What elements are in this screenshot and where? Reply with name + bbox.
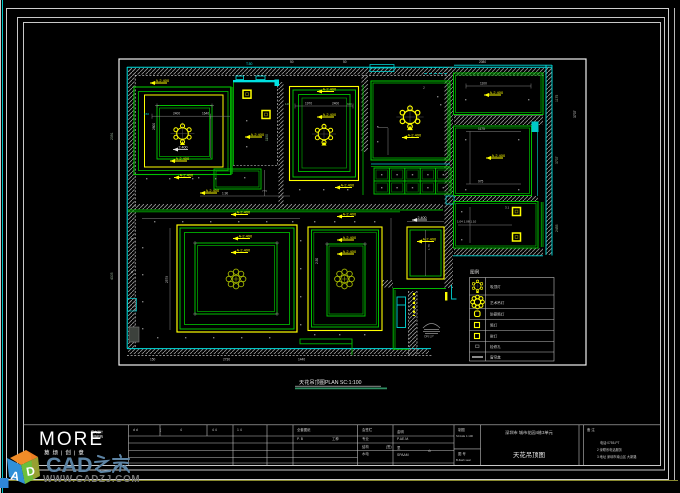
svg-text:图 号: 图 号	[458, 451, 466, 456]
svg-text:1 4: 1 4	[237, 428, 242, 432]
svg-text:2400: 2400	[332, 102, 339, 106]
svg-text:2455: 2455	[555, 224, 559, 232]
svg-text:P.AE.M.: P.AE.M.	[397, 437, 409, 441]
svg-text:1.78: 1.78	[427, 244, 431, 250]
svg-text:天花吊顶图: 天花吊顶图	[513, 450, 545, 459]
svg-text:结构: 结构	[362, 444, 369, 449]
svg-text:ON LP: ON LP	[424, 335, 434, 339]
svg-text:140: 140	[285, 102, 290, 106]
svg-text:2400: 2400	[173, 112, 180, 116]
svg-text:艺术吊灯: 艺术吊灯	[490, 300, 505, 305]
svg-text:2579: 2579	[165, 276, 169, 283]
svg-text:1150: 1150	[265, 134, 269, 141]
svg-text:2080: 2080	[479, 60, 486, 64]
svg-text:2730: 2730	[223, 358, 230, 362]
svg-text:窗帘盒: 窗帘盒	[490, 355, 501, 360]
svg-text:1175: 1175	[478, 127, 485, 131]
svg-text:1440: 1440	[298, 358, 305, 362]
svg-text:975: 975	[478, 180, 484, 184]
svg-text:水电: 水电	[362, 451, 369, 456]
svg-text:4305: 4305	[110, 272, 114, 280]
svg-text:电话:0755-PT: 电话:0755-PT	[600, 440, 620, 445]
svg-text:1175: 1175	[555, 95, 559, 102]
svg-text:(签): (签)	[386, 444, 392, 449]
svg-text:d d: d d	[133, 428, 138, 432]
svg-text:50: 50	[343, 60, 347, 64]
svg-text:2800: 2800	[152, 123, 156, 130]
svg-text:检修孔: 检修孔	[490, 344, 501, 349]
svg-text:3.1: 3.1	[505, 206, 510, 210]
svg-text:1.04 1.08 1.10: 1.04 1.08 1.10	[457, 220, 477, 224]
svg-text:940: 940	[347, 102, 352, 106]
svg-text:2 深联系电话服务: 2 深联系电话服务	[597, 447, 623, 452]
svg-text:1970: 1970	[305, 102, 312, 106]
svg-text:天花吊顶图PLAN SC:1:100: 天花吊顶图PLAN SC:1:100	[299, 378, 362, 386]
svg-text:SPAAM: SPAAM	[397, 453, 409, 457]
svg-text:金明: 金明	[397, 429, 404, 434]
svg-text:1100: 1100	[480, 82, 487, 86]
svg-text:防雾筒灯: 防雾筒灯	[490, 312, 505, 317]
svg-text:150: 150	[144, 112, 149, 116]
svg-text:775: 775	[262, 189, 267, 193]
svg-text:装饰机构: 装饰机构	[91, 434, 103, 439]
svg-text:1640: 1640	[202, 112, 209, 116]
svg-text:2.50: 2.50	[315, 258, 319, 264]
svg-text:WWW.CADZJ.COM: WWW.CADZJ.COM	[43, 474, 140, 485]
svg-text:吸顶灯: 吸顶灯	[490, 284, 501, 289]
svg-text:3 地址 深圳市南山区 大新路: 3 地址 深圳市南山区 大新路	[597, 454, 637, 459]
svg-text:深圳市 城市花园4栋3单元: 深圳市 城市花园4栋3单元	[505, 429, 553, 436]
svg-text:图例: 图例	[470, 269, 480, 276]
svg-text:T.50: T.50	[246, 62, 253, 66]
svg-text:3737: 3737	[573, 110, 577, 118]
svg-text:1.90: 1.90	[222, 192, 228, 196]
svg-text:射灯: 射灯	[490, 334, 498, 339]
svg-text:50: 50	[290, 60, 294, 64]
svg-text:室内设计: 室内设计	[91, 429, 103, 434]
svg-text:专业: 专业	[362, 436, 369, 441]
svg-text:工种: 工种	[332, 436, 339, 441]
svg-text:150: 150	[150, 358, 156, 362]
svg-text:2391: 2391	[110, 132, 114, 140]
svg-text:筒灯: 筒灯	[490, 323, 498, 328]
svg-text:全套图纸: 全套图纸	[297, 427, 311, 432]
svg-text:制图: 制图	[458, 427, 465, 432]
svg-text:B-flash seal: B-flash seal	[456, 458, 471, 462]
svg-text:SCALE 1:100: SCALE 1:100	[456, 434, 473, 438]
svg-text:4: 4	[180, 428, 182, 432]
svg-text:2: 2	[423, 86, 425, 90]
svg-text:会签栏: 会签栏	[362, 427, 373, 432]
svg-text:4 4: 4 4	[212, 428, 217, 432]
svg-text:⊙: ⊙	[428, 449, 431, 453]
svg-text:备 注: 备 注	[587, 427, 595, 432]
svg-text:P. B: P. B	[297, 437, 304, 441]
svg-text:3737: 3737	[555, 156, 559, 164]
